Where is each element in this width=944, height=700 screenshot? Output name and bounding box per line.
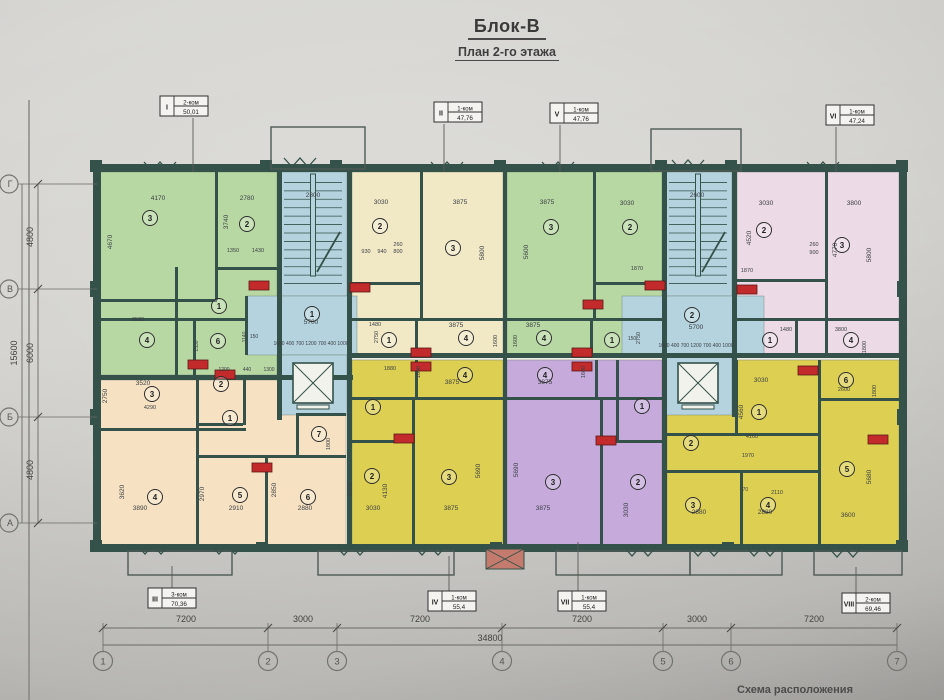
apartment-room-count: 1-ком <box>573 107 589 113</box>
dimension-label: 3740 <box>223 214 230 229</box>
drawing-title: Блок-В План 2-го этажа <box>455 16 559 61</box>
dimension-label: 2970 <box>199 486 206 501</box>
room-number-text: 1 <box>640 402 645 411</box>
dimension-label: 150 <box>250 334 259 340</box>
room-number-text: 1 <box>228 414 233 423</box>
dimension-label: 770 <box>740 487 749 493</box>
partition-wall <box>507 318 662 321</box>
room-number-text: 3 <box>447 473 452 482</box>
dimension-label: 2880 <box>298 505 313 512</box>
dimension-label: 1970 <box>742 453 754 459</box>
partition-wall <box>296 413 346 416</box>
partition-wall <box>196 455 346 458</box>
room-number: 2 <box>684 436 699 451</box>
dimension-label: 4130 <box>382 483 389 498</box>
room-number: 6 <box>839 373 854 388</box>
partition-wall <box>215 267 277 270</box>
dimension-label: 1800 <box>326 438 332 450</box>
axis-number: 4 <box>499 656 504 667</box>
dimension-label: 3030 <box>374 199 389 206</box>
floor-subtitle: План 2-го этажа <box>455 45 559 61</box>
dimension-label: 940 <box>377 249 386 255</box>
apartment-area: 55,4 <box>453 604 466 611</box>
room-number-text: 2 <box>628 223 633 232</box>
room-number: 2 <box>240 217 255 232</box>
dimension-label: 1300 <box>263 367 274 373</box>
dimension-label: 1140 <box>242 331 248 342</box>
balcony-outline <box>271 127 365 169</box>
dimension-label: 5700 <box>689 324 704 331</box>
dimension-label: 900 <box>809 250 818 256</box>
vent-block <box>798 366 818 375</box>
dimension-label: 2880 <box>758 509 773 516</box>
dimension-label: 1870 <box>631 266 643 272</box>
dimension-label: 3600 <box>841 512 856 519</box>
axis-number: 7 <box>894 656 899 667</box>
structural-wall <box>732 164 737 417</box>
dimension-label: 1350 <box>227 248 239 254</box>
footer-note: Схема расположения <box>737 684 853 696</box>
room-number: 5 <box>233 488 248 503</box>
room-number-text: 1 <box>217 302 222 311</box>
room-number-text: 2 <box>378 222 383 231</box>
elevator-shaft <box>293 363 333 409</box>
balcony-outline <box>318 551 454 575</box>
axis-dimension: 6000 <box>25 343 35 363</box>
room-number-text: 2 <box>245 220 250 229</box>
dimension-label: 5600 <box>523 244 530 259</box>
dimension-label: 440 <box>243 367 252 373</box>
dimension-label: 5800 <box>479 245 486 260</box>
entrance-block <box>486 549 524 569</box>
room-number-text: 4 <box>145 336 150 345</box>
structural-wall <box>662 164 667 417</box>
axis-dimension: 4800 <box>25 227 35 247</box>
room-number-text: 3 <box>148 214 153 223</box>
partition-wall <box>737 279 825 282</box>
dimension-label: 5700 <box>304 319 319 326</box>
room-number: 1 <box>382 333 397 348</box>
dimension-label: 2780 <box>240 195 255 202</box>
partition-wall <box>818 398 899 401</box>
apartment-tag-III: III3-ком70,36 <box>148 566 196 608</box>
partition-wall <box>616 360 619 440</box>
room-number-text: 1 <box>757 408 762 417</box>
room-number: 7 <box>312 427 327 442</box>
room-zone-yellow <box>352 360 503 546</box>
room-number: 1 <box>763 333 778 348</box>
vent-block <box>394 434 414 443</box>
room-number-text: 6 <box>306 493 311 502</box>
dimension-label: 260 <box>393 242 402 248</box>
apartment-tag-VI: VI1-ком47,24 <box>826 105 874 172</box>
axis-dimension: 3000 <box>293 614 313 624</box>
partition-wall <box>595 360 598 397</box>
room-number: 1 <box>366 400 381 415</box>
dimension-label: 3030 <box>366 505 381 512</box>
room-number-text: 2 <box>690 311 695 320</box>
room-number: 4 <box>537 331 552 346</box>
structural-wall <box>897 281 907 297</box>
room-number-text: 4 <box>464 334 469 343</box>
apartment-area: 47,24 <box>849 118 865 125</box>
dimension-label: 2910 <box>229 505 244 512</box>
dimension-label: 2880 <box>692 509 707 516</box>
partition-wall <box>100 428 246 431</box>
dimension-label: 3030 <box>759 200 774 207</box>
axis-letter: Б <box>7 412 13 422</box>
room-number: 3 <box>442 470 457 485</box>
apartment-tag-V: V1-ком47,76 <box>550 103 598 172</box>
dimension-label: 5350 <box>347 481 354 496</box>
dimension-label: 2110 <box>771 490 783 496</box>
vent-block <box>645 281 665 290</box>
room-number: 2 <box>623 220 638 235</box>
dimension-label: 5680 <box>866 469 873 484</box>
structural-wall <box>256 542 268 552</box>
dimension-label: 5800 <box>866 247 873 262</box>
partition-wall <box>196 423 243 426</box>
apartment-area: 55,4 <box>583 604 596 611</box>
stair-stringer <box>311 174 316 276</box>
room-number-text: 2 <box>762 226 767 235</box>
apartment-room-count: 1-ком <box>457 106 473 112</box>
dimension-label: 1600 <box>493 335 499 347</box>
vent-block <box>249 281 269 290</box>
room-number: 2 <box>365 469 380 484</box>
room-number-text: 4 <box>849 336 854 345</box>
dimension-label: 3030 <box>754 377 769 384</box>
dimension-label: 1600 <box>416 366 422 378</box>
dimension-label: 2800 <box>306 192 321 199</box>
apartment-room-count: 2-ком <box>865 597 881 603</box>
floor-plan-svg: 3214623143214231432174561423412316253412… <box>0 0 944 700</box>
dimension-label: 3875 <box>445 379 460 386</box>
apartment-room-count: 1-ком <box>849 109 865 115</box>
dimension-label: 5690 <box>513 462 520 477</box>
room-number: 5 <box>840 462 855 477</box>
apartment-room-count: 2-ком <box>183 100 199 106</box>
room-number-text: 3 <box>551 478 556 487</box>
room-number-text: 3 <box>451 244 456 253</box>
vent-block <box>572 348 592 357</box>
structural-wall <box>93 164 101 552</box>
room-number: 1 <box>752 405 767 420</box>
partition-wall <box>795 318 798 355</box>
partition-wall <box>245 296 248 355</box>
dimension-label: 4160 <box>746 434 758 440</box>
dimension-label: 3520 <box>136 380 151 387</box>
partition-wall <box>100 318 247 321</box>
room-number-text: 4 <box>542 334 547 343</box>
apartment-roman-numeral: III <box>152 597 158 604</box>
axis-dimension: 3000 <box>687 614 707 624</box>
dimension-label: 3875 <box>453 199 468 206</box>
dimension-label: 1800 <box>872 385 878 397</box>
dimension-label: 2750 <box>636 332 642 344</box>
room-number-text: 5 <box>238 491 243 500</box>
vent-block <box>188 360 208 369</box>
partition-wall <box>825 172 828 355</box>
room-number: 3 <box>546 475 561 490</box>
structural-wall <box>899 164 907 552</box>
room-number: 4 <box>140 333 155 348</box>
structural-wall <box>896 540 908 552</box>
dimension-label: 3875 <box>449 322 464 329</box>
structural-wall <box>896 160 908 172</box>
partition-wall <box>818 360 821 546</box>
dimension-label: 1870 <box>741 268 753 274</box>
apartment-tag-II: II1-ком47,76 <box>434 102 482 172</box>
room-number-text: 6 <box>216 337 221 346</box>
dimension-label: 800 <box>393 249 402 255</box>
apartment-roman-numeral: VI <box>830 114 837 121</box>
dimension-label: 3520 <box>132 317 144 323</box>
room-number-text: 1 <box>310 310 315 319</box>
bottom-axis-grid: 123456772003000720072003000720034800 <box>94 614 907 671</box>
room-number: 4 <box>458 368 473 383</box>
axis-dimension: 4800 <box>25 460 35 480</box>
axis-letter: В <box>7 284 13 294</box>
elevator-counterweight <box>682 405 714 409</box>
apartment-roman-numeral: VIII <box>844 602 855 609</box>
vent-block <box>737 285 757 294</box>
partition-wall <box>243 380 246 425</box>
room-number: 6 <box>211 334 226 349</box>
axis-number: 2 <box>265 656 270 667</box>
elevator-counterweight <box>297 405 329 409</box>
dimension-label: 3875 <box>536 505 551 512</box>
room-number: 1 <box>635 399 650 414</box>
left-axis-grid: ГВБА48006000480015600 <box>0 175 97 532</box>
partition-wall <box>100 299 217 302</box>
dimension-label: 3875 <box>526 322 541 329</box>
apartment-area: 47,76 <box>457 115 473 122</box>
structural-wall <box>347 375 352 552</box>
room-number: 2 <box>757 223 772 238</box>
apartment-tag-I: I2-ком50,01 <box>160 96 208 172</box>
room-number: 2 <box>373 219 388 234</box>
axis-number: 5 <box>660 656 665 667</box>
room-number-text: 3 <box>549 223 554 232</box>
dimension-label: 1600 <box>513 335 519 347</box>
apartment-roman-numeral: I <box>166 105 168 112</box>
axis-number: 6 <box>728 656 733 667</box>
dimension-label: 1000 400 700 1200 700 400 1000 <box>658 343 733 349</box>
axis-number: 3 <box>334 656 339 667</box>
structural-wall <box>655 160 667 170</box>
stair-stringer <box>696 174 701 276</box>
elevator-shaft <box>678 363 718 409</box>
partition-wall <box>600 397 603 546</box>
room-number: 4 <box>844 333 859 348</box>
dimension-label: 1480 <box>369 322 381 328</box>
partition-wall <box>352 318 503 321</box>
apartment-tag-IV: IV1-ком55,4 <box>428 556 476 611</box>
dimension-label: 1430 <box>252 248 264 254</box>
axis-dimension: 7200 <box>804 614 824 624</box>
axis-number: 1 <box>100 656 105 667</box>
dimension-label: 4670 <box>107 234 114 249</box>
room-number-text: 3 <box>150 390 155 399</box>
structural-wall <box>662 415 667 552</box>
apartment-tag-VII: VII1-ком55,4 <box>558 542 606 611</box>
balcony-outline <box>814 551 902 575</box>
dimension-label: 5690 <box>475 463 482 478</box>
room-number: 3 <box>145 387 160 402</box>
room-number: 2 <box>214 377 229 392</box>
vent-block <box>583 300 603 309</box>
dimension-label: 260 <box>809 242 818 248</box>
structural-wall <box>350 353 899 358</box>
structural-wall <box>494 160 506 170</box>
structural-wall <box>260 160 272 170</box>
vent-block <box>350 283 370 292</box>
dimension-label: 1800 <box>862 341 868 353</box>
dimension-label: 3890 <box>133 505 148 512</box>
dimension-label: 1530 <box>194 340 200 351</box>
dimension-label: 3875 <box>540 199 555 206</box>
vent-block <box>252 463 272 472</box>
room-number-text: 1 <box>371 403 376 412</box>
dimension-label: 3800 <box>847 200 862 207</box>
axis-dimension: 7200 <box>572 614 592 624</box>
dimension-label: 4170 <box>151 195 166 202</box>
vent-block <box>596 436 616 445</box>
room-number-text: 3 <box>840 241 845 250</box>
dimension-label: 3620 <box>119 484 126 499</box>
room-number-text: 5 <box>845 465 850 474</box>
structural-wall <box>725 160 737 170</box>
partition-wall <box>740 470 743 546</box>
dimension-label: 1480 <box>780 327 792 333</box>
dimension-label: 2600 <box>690 192 705 199</box>
dimension-label: 3800 <box>835 327 847 333</box>
axis-dimension: 7200 <box>410 614 430 624</box>
dimension-label: 4560 <box>738 404 745 419</box>
room-number-text: 2 <box>370 472 375 481</box>
partition-wall <box>593 172 596 318</box>
dimension-label: 4520 <box>746 230 753 245</box>
dimension-label: 930 <box>361 249 370 255</box>
room-number-text: 4 <box>463 371 468 380</box>
room-number: 1 <box>223 411 238 426</box>
apartment-area: 69,46 <box>865 606 881 613</box>
dimension-label: 2750 <box>374 331 380 343</box>
scanned-drawing-page: Блок-В План 2-го этажа 32146231432142314… <box>0 0 944 700</box>
dimension-label: 4770 <box>832 242 839 257</box>
apartment-area: 70,36 <box>171 601 187 608</box>
dimension-label: 1200 <box>218 367 229 373</box>
partition-wall <box>420 172 423 318</box>
block-title: Блок-В <box>468 16 546 40</box>
room-number: 3 <box>446 241 461 256</box>
room-number-text: 2 <box>636 478 641 487</box>
vent-block <box>868 435 888 444</box>
room-number: 3 <box>143 211 158 226</box>
structural-wall <box>277 375 282 420</box>
apartment-roman-numeral: IV <box>432 600 439 607</box>
dimension-label: 4290 <box>144 405 156 411</box>
axis-letter: А <box>7 518 13 528</box>
room-number-text: 1 <box>768 336 773 345</box>
vent-block <box>411 348 431 357</box>
room-zone-purple <box>507 360 662 546</box>
room-number-text: 7 <box>317 430 322 439</box>
dimension-label: 2600 <box>838 387 850 393</box>
room-number-text: 2 <box>689 439 694 448</box>
partition-wall <box>296 413 299 458</box>
balcony-outline <box>128 551 232 575</box>
room-number-text: 6 <box>844 376 849 385</box>
apartment-roman-numeral: II <box>439 111 443 118</box>
room-number: 3 <box>544 220 559 235</box>
axis-dimension: 7200 <box>176 614 196 624</box>
room-number-text: 1 <box>610 336 615 345</box>
axis-total-dimension: 15600 <box>9 340 19 365</box>
partition-wall <box>412 397 415 546</box>
apartment-tag-VIII: VIII2-ком69,46 <box>842 567 890 613</box>
partition-wall <box>215 172 218 300</box>
dimension-label: 3030 <box>620 200 635 207</box>
dimension-label: 3030 <box>623 502 630 517</box>
axis-total-dimension: 34800 <box>477 633 502 643</box>
partition-wall <box>196 380 199 546</box>
dimension-label: 1000 400 700 1200 700 400 1000 <box>273 341 348 347</box>
dimension-label: 2850 <box>271 482 278 497</box>
room-number: 2 <box>631 475 646 490</box>
room-number: 1 <box>212 299 227 314</box>
apartment-room-count: 3-ком <box>171 592 187 598</box>
room-number: 2 <box>685 308 700 323</box>
room-number-text: 2 <box>219 380 224 389</box>
structural-wall <box>503 164 507 553</box>
dimension-label: 2750 <box>102 388 109 403</box>
room-number-text: 4 <box>153 493 158 502</box>
room-number: 6 <box>301 490 316 505</box>
apartment-roman-numeral: V <box>555 112 560 119</box>
partition-wall <box>737 318 899 321</box>
apartment-room-count: 1-ком <box>451 595 467 601</box>
dimension-label: 3875 <box>444 505 459 512</box>
room-number: 4 <box>459 331 474 346</box>
apartment-area: 50,01 <box>183 109 199 116</box>
dimension-label: 3875 <box>538 379 553 386</box>
balcony-outline <box>556 551 690 575</box>
apartment-room-count: 1-ком <box>581 595 597 601</box>
apartment-area: 47,76 <box>573 116 589 123</box>
dimension-label: 1880 <box>384 366 396 372</box>
structural-wall <box>897 409 907 425</box>
dimension-label: 1600 <box>581 366 587 378</box>
apartment-roman-numeral: VII <box>561 600 570 607</box>
room-number-text: 1 <box>387 336 392 345</box>
structural-wall <box>90 540 102 552</box>
room-number: 1 <box>605 333 620 348</box>
structural-wall <box>90 160 102 172</box>
axis-letter: Г <box>8 179 13 189</box>
room-number: 4 <box>148 490 163 505</box>
